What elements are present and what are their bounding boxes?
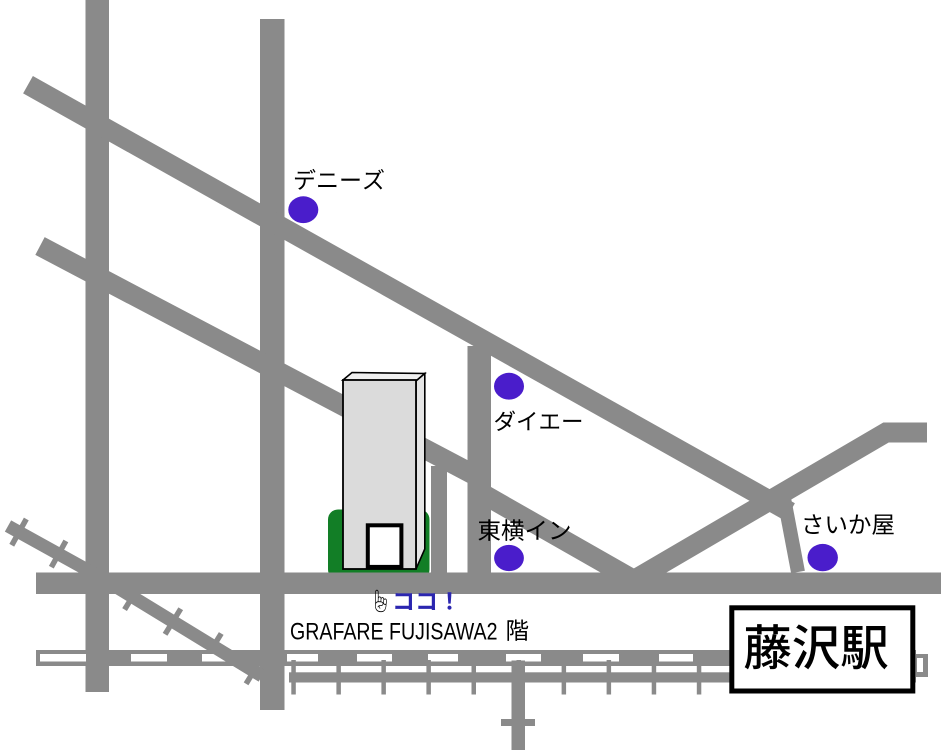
svg-text:GRAFARE FUJISAWA2: GRAFARE FUJISAWA2: [290, 619, 498, 646]
